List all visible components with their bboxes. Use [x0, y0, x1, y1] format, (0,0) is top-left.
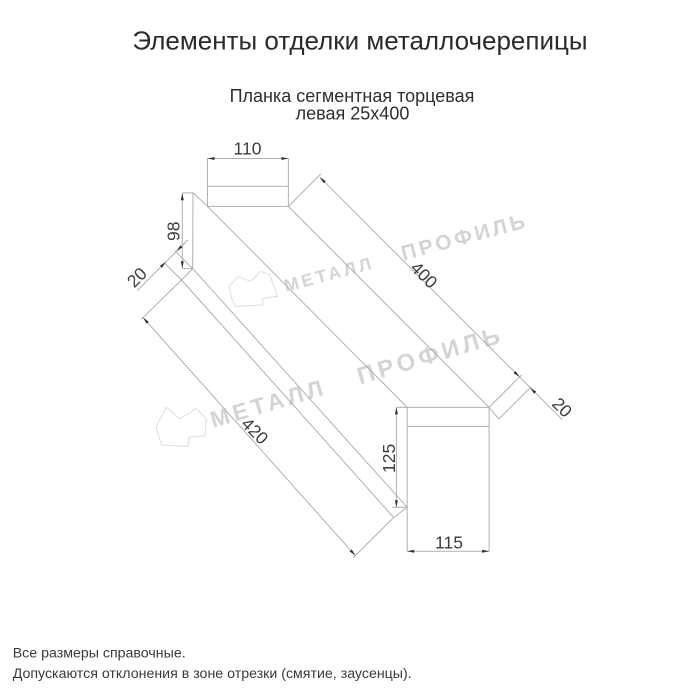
svg-text:115: 115 — [435, 533, 463, 553]
svg-text:Допускаются отклонения в зоне: Допускаются отклонения в зоне отрезки (с… — [13, 666, 412, 682]
svg-text:МЕТАЛЛПРОФИЛЬ: МЕТАЛЛПРОФИЛЬ — [281, 209, 530, 296]
svg-text:98: 98 — [164, 222, 184, 241]
svg-text:20: 20 — [548, 393, 576, 421]
svg-text:Элементы отделки металлочерепи: Элементы отделки металлочерепицы — [132, 26, 587, 56]
svg-text:Все размеры справочные.: Все размеры справочные. — [13, 646, 186, 662]
svg-text:20: 20 — [123, 263, 151, 291]
svg-text:левая 25x400: левая 25x400 — [296, 104, 410, 124]
svg-text:125: 125 — [379, 444, 399, 473]
svg-text:110: 110 — [234, 139, 262, 159]
